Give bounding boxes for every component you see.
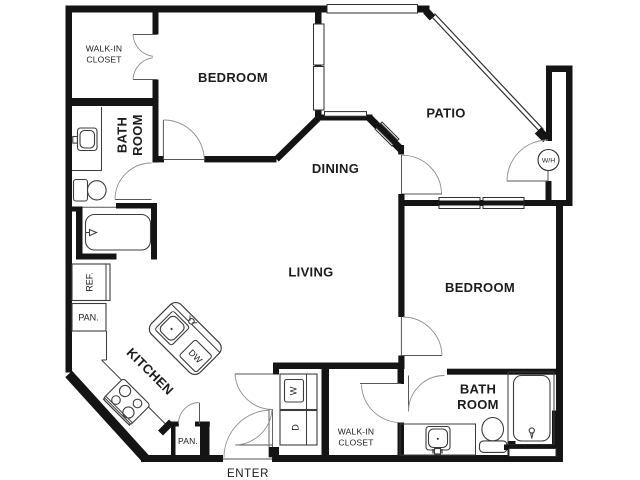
svg-text:PATIO: PATIO [426,106,465,121]
svg-text:ROOM: ROOM [130,114,145,156]
svg-text:LIVING: LIVING [288,265,333,280]
svg-text:D: D [291,424,301,431]
svg-text:DINING: DINING [312,161,359,176]
svg-text:ROOM: ROOM [457,397,499,412]
svg-text:PAN.: PAN. [178,436,198,446]
svg-text:BEDROOM: BEDROOM [445,280,515,295]
svg-text:BATH: BATH [115,117,130,153]
svg-text:W/H: W/H [542,158,555,165]
svg-text:CLOSET: CLOSET [338,438,373,448]
svg-text:CLOSET: CLOSET [86,55,121,65]
svg-text:W: W [289,386,299,395]
svg-text:BEDROOM: BEDROOM [198,70,268,85]
svg-text:ENTER: ENTER [227,468,269,480]
svg-text:WALK-IN: WALK-IN [338,427,375,437]
svg-text:REF.: REF. [85,272,95,292]
svg-text:WALK-IN: WALK-IN [86,44,123,54]
svg-text:PAN.: PAN. [78,313,98,323]
svg-text:BATH: BATH [460,382,496,397]
